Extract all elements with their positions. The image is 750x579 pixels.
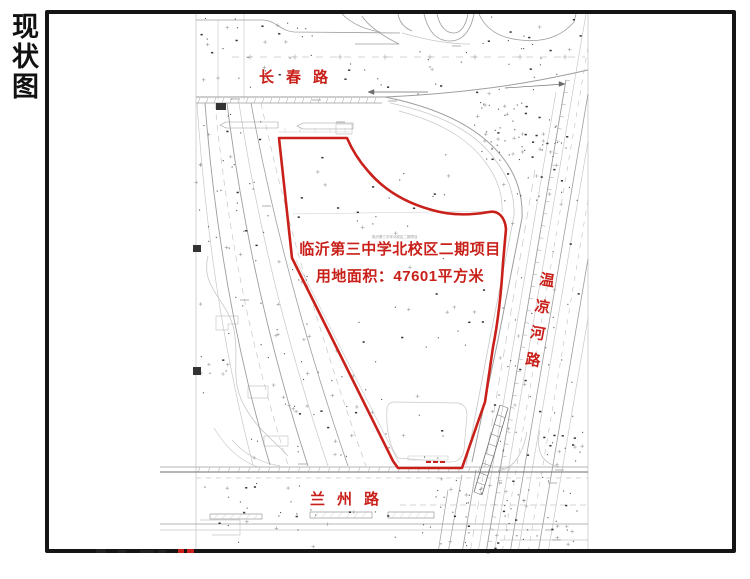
- tiny-parcel-label: 临沂第三中学北校区二期项目: [372, 235, 418, 240]
- road-label-changchun: 长春路: [259, 66, 340, 87]
- parcel-annotation: 临沂第三中学北校区二期项目 用地面积：47601平方米: [283, 236, 517, 290]
- parcel-annotation-line2: 用地面积：47601平方米: [283, 263, 517, 290]
- road-label-lanzhou: 兰州路: [310, 488, 391, 509]
- current-situation-map: 现状图 长春路 兰州路 温凉河路 临沂第三中学北校区二期项目 用地面积：4760…: [0, 0, 750, 579]
- drawing-sheet-title: 现状图: [6, 12, 40, 102]
- parcel-annotation-line1: 临沂第三中学北校区二期项目: [283, 236, 517, 263]
